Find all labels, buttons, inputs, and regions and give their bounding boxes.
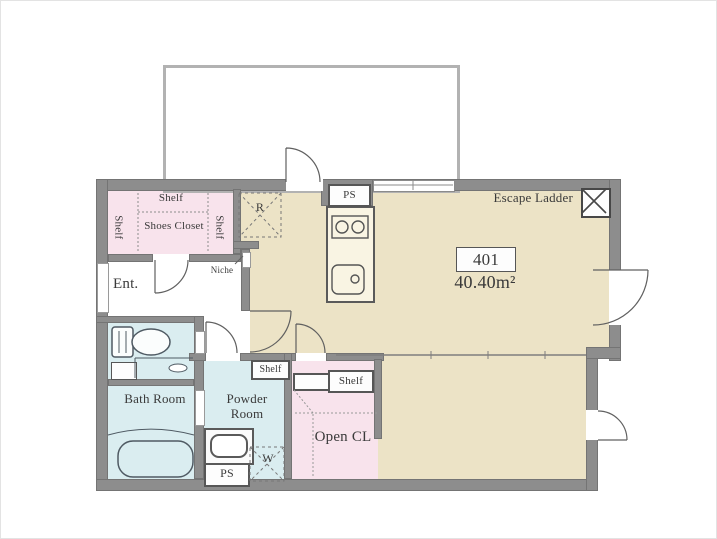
kitchen-counter [326, 206, 375, 303]
shelf-box-blank [293, 373, 331, 391]
wall-step [586, 347, 621, 359]
wall-ent-toilet [96, 316, 204, 323]
bedroom [378, 353, 586, 479]
powder-room-label: Powder Room [211, 392, 283, 422]
living-exit-opening [609, 270, 621, 325]
refrigerator-label: R [243, 201, 277, 215]
escape-hatch-box [581, 188, 611, 218]
washer-label: W [256, 452, 280, 466]
bath-room-label: Bath Room [123, 392, 187, 407]
closet-door-arc [155, 260, 188, 293]
open-closet-label: Open CL [304, 429, 382, 446]
bedroom-exit-opening [586, 410, 598, 440]
shelf-label-right: Shelf [213, 201, 226, 253]
hall-living-opening [241, 311, 250, 353]
shelf-label-powder: Shelf [259, 364, 281, 376]
pipe-space-box-top: PS [328, 184, 371, 207]
bedroom-exit-door-arc [598, 411, 627, 440]
pipe-space-label-bottom: PS [220, 467, 234, 481]
shoes-closet-label: Shoes Closet [143, 220, 205, 233]
shelf-box-powder: Shelf [251, 360, 290, 380]
entrance-label: Ent. [113, 276, 153, 293]
wall-closet-bottom-left [108, 254, 153, 262]
window [373, 180, 455, 192]
room-number-box: 401 [456, 247, 516, 272]
pipe-space-label-top: PS [343, 189, 356, 202]
front-door [97, 263, 109, 313]
toilet-cabinet [111, 362, 137, 380]
wall-closet-bottom-right [189, 254, 241, 262]
shelf-box-open-closet: Shelf [328, 370, 374, 393]
floor-plan: PS PS Shelf Shelf 401 Shelf Shelf Shelf … [0, 0, 717, 539]
vanity-sink [210, 434, 248, 458]
bath-door [195, 390, 205, 426]
powder-door-arc [206, 322, 237, 353]
wall-open-closet [374, 359, 382, 439]
wall-fridge-stub [233, 241, 259, 249]
niche-label: Niche [207, 265, 237, 275]
powder-door-opening [206, 353, 240, 361]
shelf-label-open-closet: Shelf [339, 375, 363, 388]
toilet-door [195, 331, 205, 354]
wall-toilet-bath [108, 379, 194, 386]
shelf-label-top: Shelf [141, 192, 201, 205]
room-number: 401 [473, 250, 499, 270]
niche-recess [242, 252, 251, 268]
balcony-door-opening [286, 179, 323, 191]
wall-bottom [96, 479, 598, 491]
balcony [163, 65, 460, 193]
living-dining-room [241, 189, 609, 353]
escape-ladder-label: Escape Ladder [451, 191, 573, 206]
closet-door-opening [153, 254, 189, 262]
wall-left [96, 179, 108, 491]
open-closet-opening [296, 353, 326, 361]
shelf-label-left: Shelf [112, 201, 125, 253]
area-label: 40.40m² [439, 272, 531, 293]
wall-band-a [189, 353, 206, 361]
